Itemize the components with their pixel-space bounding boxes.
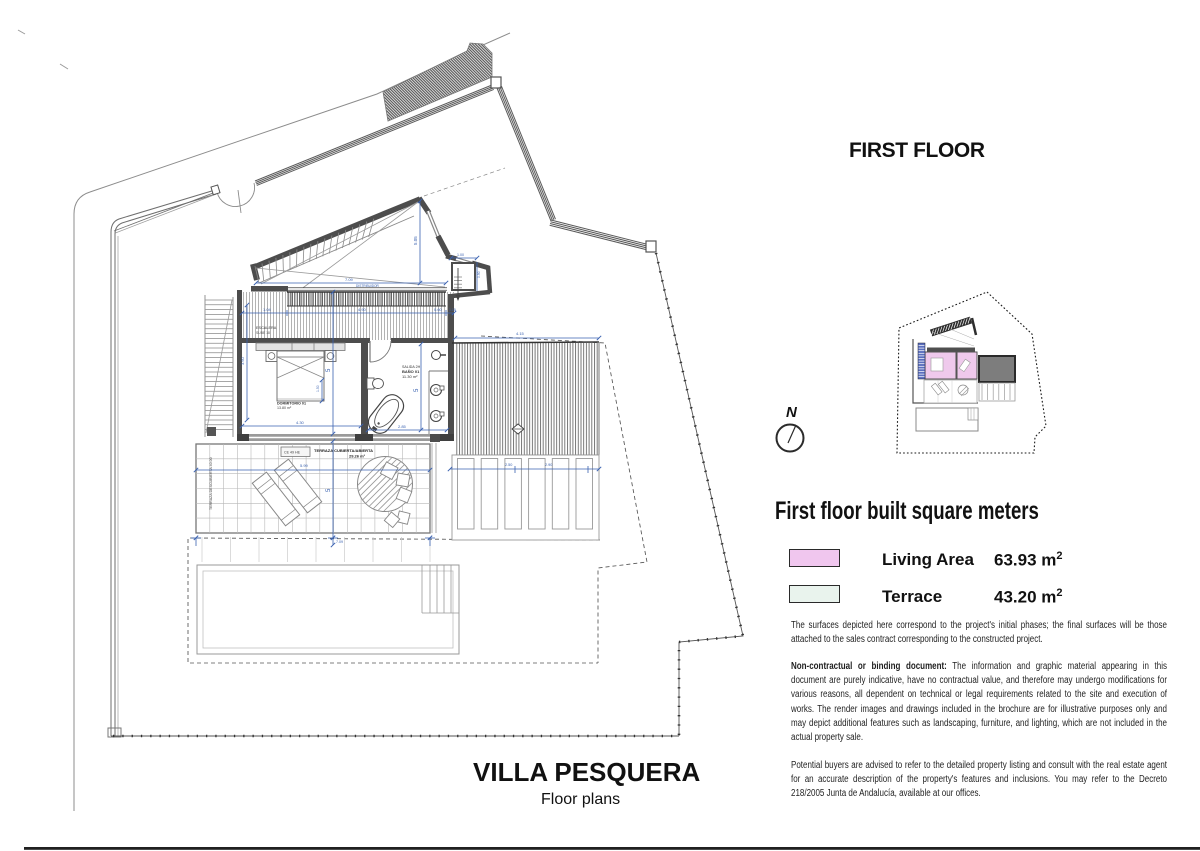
svg-text:7.09: 7.09 — [345, 277, 354, 282]
svg-text:1.04: 1.04 — [263, 307, 272, 312]
svg-text:N: N — [786, 404, 798, 421]
svg-text:1.15: 1.15 — [449, 308, 456, 312]
svg-text:5.05: 5.05 — [413, 236, 418, 245]
svg-text:CE 49 HE: CE 49 HE — [284, 451, 301, 455]
svg-text:1.50: 1.50 — [316, 385, 320, 392]
svg-text:1.00: 1.00 — [457, 253, 464, 257]
svg-text:TERRAZA CUBIERTA/ABIERTA: TERRAZA CUBIERTA/ABIERTA — [314, 448, 373, 453]
svg-text:4.30: 4.30 — [296, 420, 305, 425]
svg-text:3.60: 3.60 — [240, 356, 245, 365]
svg-text:0.90: 0.90 — [477, 271, 481, 278]
svg-text:2.50: 2.50 — [505, 463, 512, 467]
svg-text:0.60: 0.60 — [434, 307, 443, 312]
svg-text:2.90: 2.90 — [545, 463, 552, 467]
svg-text:SUBE 18: SUBE 18 — [256, 331, 270, 335]
svg-text:TERRAZA DESCUBIERTA 40.00: TERRAZA DESCUBIERTA 40.00 — [209, 457, 213, 510]
svg-text:5.99: 5.99 — [300, 463, 309, 468]
svg-text:13.80 m²: 13.80 m² — [277, 406, 292, 410]
svg-text:7.09: 7.09 — [336, 540, 343, 544]
svg-text:4.15: 4.15 — [516, 331, 525, 336]
svg-text:11.30 m²: 11.30 m² — [402, 374, 418, 379]
svg-text:ESCALERA: ESCALERA — [256, 326, 277, 330]
svg-text:29.26 m²: 29.26 m² — [349, 454, 366, 459]
svg-text:DORMITORIO 01: DORMITORIO 01 — [277, 402, 306, 406]
svg-text:4.90: 4.90 — [358, 307, 367, 312]
svg-text:5: 5 — [326, 368, 332, 372]
svg-text:5: 5 — [414, 388, 420, 392]
svg-text:DISTRIBUIDOR: DISTRIBUIDOR — [356, 284, 380, 288]
svg-text:2.85: 2.85 — [398, 424, 407, 429]
